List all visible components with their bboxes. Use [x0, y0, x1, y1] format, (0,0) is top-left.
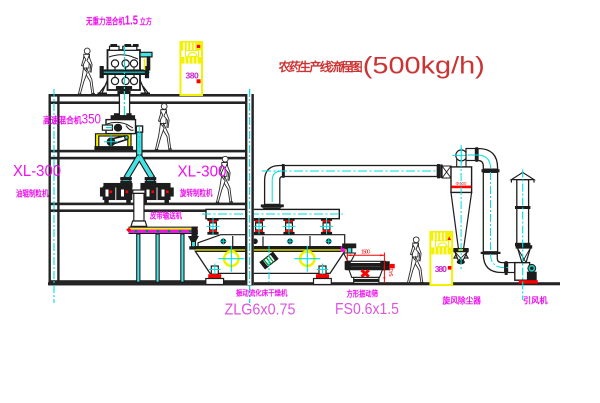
svg-text:1500: 1500 [361, 249, 370, 255]
svg-text:380: 380 [186, 71, 199, 81]
svg-text:旋风除尘器: 旋风除尘器 [442, 295, 482, 305]
svg-text:方形振动筛: 方形振动筛 [347, 288, 379, 298]
svg-text:ZLG6x0.75: ZLG6x0.75 [225, 302, 296, 319]
svg-text:皮带输送机: 皮带输送机 [149, 211, 182, 221]
svg-text:(500kg/h): (500kg/h) [363, 53, 485, 80]
svg-text:油辊制粒机: 油辊制粒机 [16, 189, 49, 199]
svg-text:541: 541 [389, 268, 395, 276]
svg-text:FS0.6x1.5: FS0.6x1.5 [335, 301, 399, 318]
svg-text:农药生产线流程图: 农药生产线流程图 [278, 59, 363, 74]
svg-text:380: 380 [435, 264, 447, 274]
svg-text:旋转制粒机: 旋转制粒机 [179, 188, 213, 198]
svg-text:XL-300: XL-300 [13, 163, 61, 180]
svg-text:引风机: 引风机 [523, 295, 548, 305]
svg-text:振动流化床干燥机: 振动流化床干燥机 [236, 287, 288, 297]
svg-text:XL-300: XL-300 [178, 164, 227, 181]
